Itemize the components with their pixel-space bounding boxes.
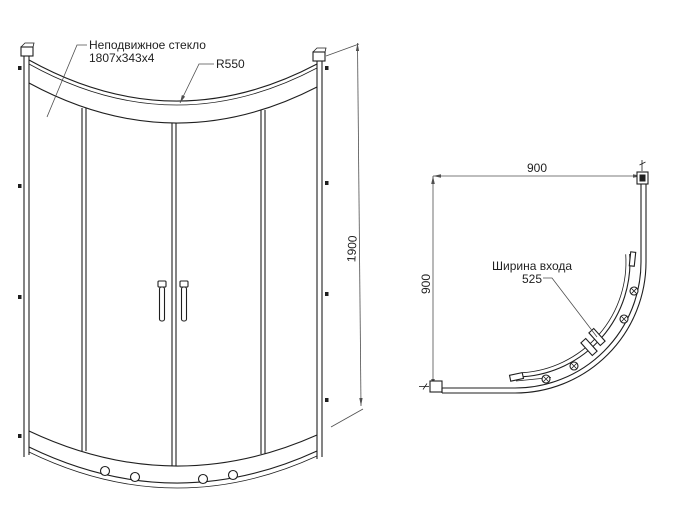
leader-line (180, 64, 214, 103)
radius-label-text: R550 (216, 57, 245, 71)
right-wall-profile (313, 48, 329, 459)
dimension-arrowhead (431, 176, 435, 184)
extension-line (331, 409, 363, 427)
roller (101, 467, 110, 476)
glass-panel-dividers (82, 108, 265, 466)
bottom-rail (29, 431, 317, 488)
left-wall-profile (18, 43, 34, 457)
plan-view: 900 900 (419, 160, 648, 393)
right-handle-cap (180, 281, 188, 287)
front-view: Неподвижное стекло 1807x343x4 R550 1900 (18, 38, 363, 488)
leader-arrowhead (180, 95, 185, 103)
wall-clip (18, 66, 22, 70)
shower-enclosure-drawing: Неподвижное стекло 1807x343x4 R550 1900 … (0, 0, 679, 526)
height-dimension-text: 1900 (344, 235, 359, 263)
roller (199, 475, 208, 484)
roller (229, 471, 238, 480)
depth-dimension: 900 (419, 176, 435, 387)
dimension-arrowhead (359, 398, 362, 406)
fixed-glass-label-text: Неподвижное стекло (89, 38, 206, 52)
wall-clip (18, 295, 22, 299)
entry-width-value-text: 525 (522, 272, 542, 286)
wall-clip (325, 292, 329, 296)
roller (131, 473, 140, 482)
wall-clip (18, 434, 22, 438)
door-handles (158, 281, 188, 321)
width-dimension: 900 (433, 161, 641, 178)
entry-width-label-text: Ширина входа (492, 259, 572, 273)
door-end-cap (629, 252, 635, 266)
wall-clip (325, 398, 329, 402)
fixed-glass-size-text: 1807x343x4 (89, 51, 155, 65)
height-dimension: 1900 (326, 43, 363, 427)
top-rail (29, 60, 317, 123)
door-end-cap (510, 373, 524, 382)
dimension-arrowhead (433, 174, 441, 178)
left-handle (160, 287, 165, 321)
left-post-cap (21, 47, 33, 56)
technical-drawing-page: Неподвижное стекло 1807x343x4 R550 1900 … (0, 0, 679, 526)
wall-clip (325, 66, 329, 70)
width-dimension-text: 900 (527, 161, 547, 175)
handle-top-view (581, 339, 597, 356)
left-handle-cap (158, 281, 166, 287)
extension-line (326, 44, 359, 56)
right-post-cap (313, 52, 325, 61)
depth-dimension-text: 900 (419, 274, 433, 294)
wall-clip (18, 184, 22, 188)
bottom-wall-anchor (430, 381, 442, 392)
plan-wall-profiles (442, 184, 646, 393)
radius-label: R550 (180, 57, 245, 103)
entry-width-label: Ширина входа 525 (492, 259, 597, 337)
plan-door-handles (581, 329, 605, 356)
dimension-line (358, 43, 362, 406)
wall-clip (325, 181, 329, 185)
leader-line (543, 278, 597, 337)
right-handle (182, 287, 187, 321)
